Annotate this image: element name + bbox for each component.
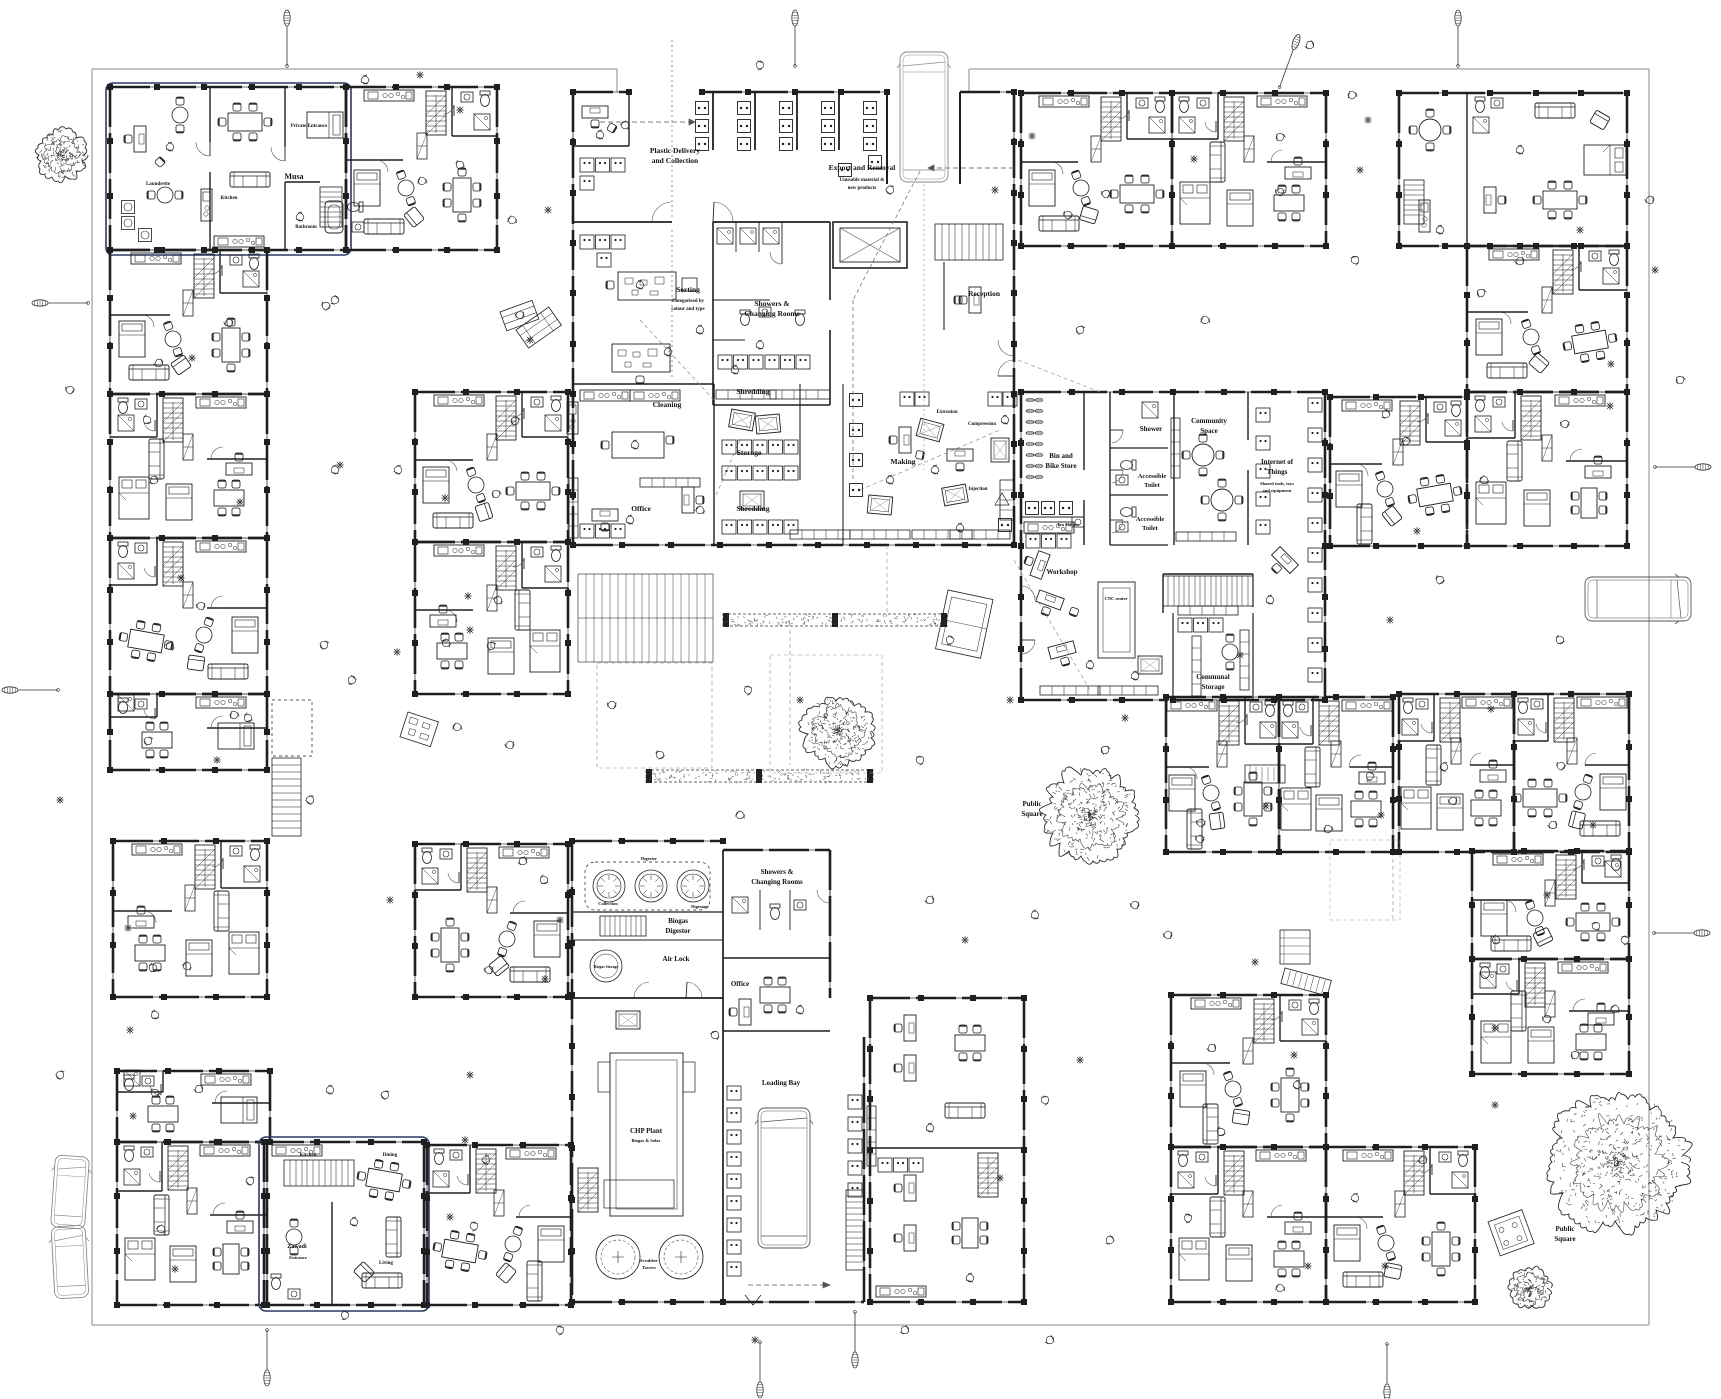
svg-text:Unusable material &: Unusable material & <box>840 178 885 183</box>
svg-text:Storage: Storage <box>737 448 762 457</box>
svg-text:Bin and: Bin and <box>1049 452 1073 460</box>
svg-text:Toilet: Toilet <box>1142 525 1158 532</box>
svg-text:Workshop: Workshop <box>1046 568 1077 576</box>
svg-text:Toilet: Toilet <box>1144 482 1160 489</box>
svg-text:Compression: Compression <box>968 422 996 427</box>
svg-text:Office: Office <box>731 980 749 988</box>
svg-text:Showers &: Showers & <box>761 868 794 876</box>
svg-text:Bathroom: Bathroom <box>295 225 317 230</box>
svg-text:Office: Office <box>631 504 651 513</box>
svg-text:CNC router: CNC router <box>1104 596 1127 601</box>
svg-text:Making: Making <box>890 457 915 466</box>
svg-text:Space: Space <box>1200 427 1218 435</box>
svg-text:Biogas: Biogas <box>668 917 688 925</box>
svg-text:Shredding: Shredding <box>736 387 769 396</box>
svg-text:Loading Bay: Loading Bay <box>762 1079 801 1087</box>
svg-text:Shared tools, toys: Shared tools, toys <box>1260 481 1294 486</box>
svg-text:Storage: Storage <box>1202 683 1225 691</box>
svg-text:Digester: Digester <box>641 856 657 861</box>
svg-text:Shower: Shower <box>1140 425 1163 433</box>
svg-text:Accessible: Accessible <box>1136 516 1165 523</box>
svg-text:Community: Community <box>1191 417 1227 425</box>
svg-text:Changing Rooms: Changing Rooms <box>751 878 803 886</box>
svg-text:Shredding: Shredding <box>736 504 769 513</box>
svg-text:Zawadi: Zawadi <box>287 1244 307 1250</box>
svg-text:Tea Station: Tea Station <box>1057 522 1079 527</box>
svg-text:Dining: Dining <box>383 1153 398 1158</box>
svg-text:Extrusion: Extrusion <box>936 410 957 415</box>
svg-text:Plastic Delivery: Plastic Delivery <box>650 146 700 155</box>
svg-text:Kitchen: Kitchen <box>300 1153 317 1158</box>
svg-text:Reception: Reception <box>968 289 1001 298</box>
svg-text:Accessible: Accessible <box>1138 473 1167 480</box>
svg-text:Injection: Injection <box>968 487 987 492</box>
svg-text:Private Entrance: Private Entrance <box>291 124 328 129</box>
svg-text:Entrance: Entrance <box>289 1255 307 1260</box>
svg-text:Scrubber: Scrubber <box>640 1258 658 1263</box>
svg-text:Musa: Musa <box>284 172 303 181</box>
svg-text:Cleaning: Cleaning <box>653 400 682 409</box>
svg-text:Digestor: Digestor <box>665 927 690 935</box>
svg-text:new products: new products <box>848 186 877 191</box>
svg-text:Bike Store: Bike Store <box>1045 462 1076 470</box>
svg-text:Air Lock: Air Lock <box>663 955 690 963</box>
svg-text:Showers &: Showers & <box>754 299 789 308</box>
svg-text:Collection: Collection <box>598 901 618 906</box>
svg-text:Digestate: Digestate <box>691 904 709 909</box>
svg-text:Changing Rooms: Changing Rooms <box>744 309 799 318</box>
svg-text:Square: Square <box>1554 1235 1575 1243</box>
svg-text:Square: Square <box>1021 810 1042 818</box>
svg-text:Biogas Storage: Biogas Storage <box>594 965 618 969</box>
svg-text:Categorised by: Categorised by <box>672 299 705 304</box>
svg-text:Public: Public <box>1022 800 1041 808</box>
svg-text:Biogas & Solar: Biogas & Solar <box>631 1138 660 1143</box>
svg-text:CHP Plant: CHP Plant <box>630 1127 663 1135</box>
svg-text:Communal: Communal <box>1196 673 1230 681</box>
svg-text:Laundrette: Laundrette <box>146 182 171 187</box>
svg-text:Towers: Towers <box>642 1265 656 1270</box>
svg-text:Kitchen: Kitchen <box>221 196 238 201</box>
svg-text:and Collection: and Collection <box>652 156 699 165</box>
svg-text:Export and Removal: Export and Removal <box>829 163 896 172</box>
svg-text:colour and type: colour and type <box>671 307 705 312</box>
svg-text:Public: Public <box>1555 1225 1574 1233</box>
svg-text:Internet of: Internet of <box>1261 458 1294 466</box>
svg-text:Sorting: Sorting <box>676 285 700 294</box>
svg-text:Living: Living <box>379 1261 393 1266</box>
